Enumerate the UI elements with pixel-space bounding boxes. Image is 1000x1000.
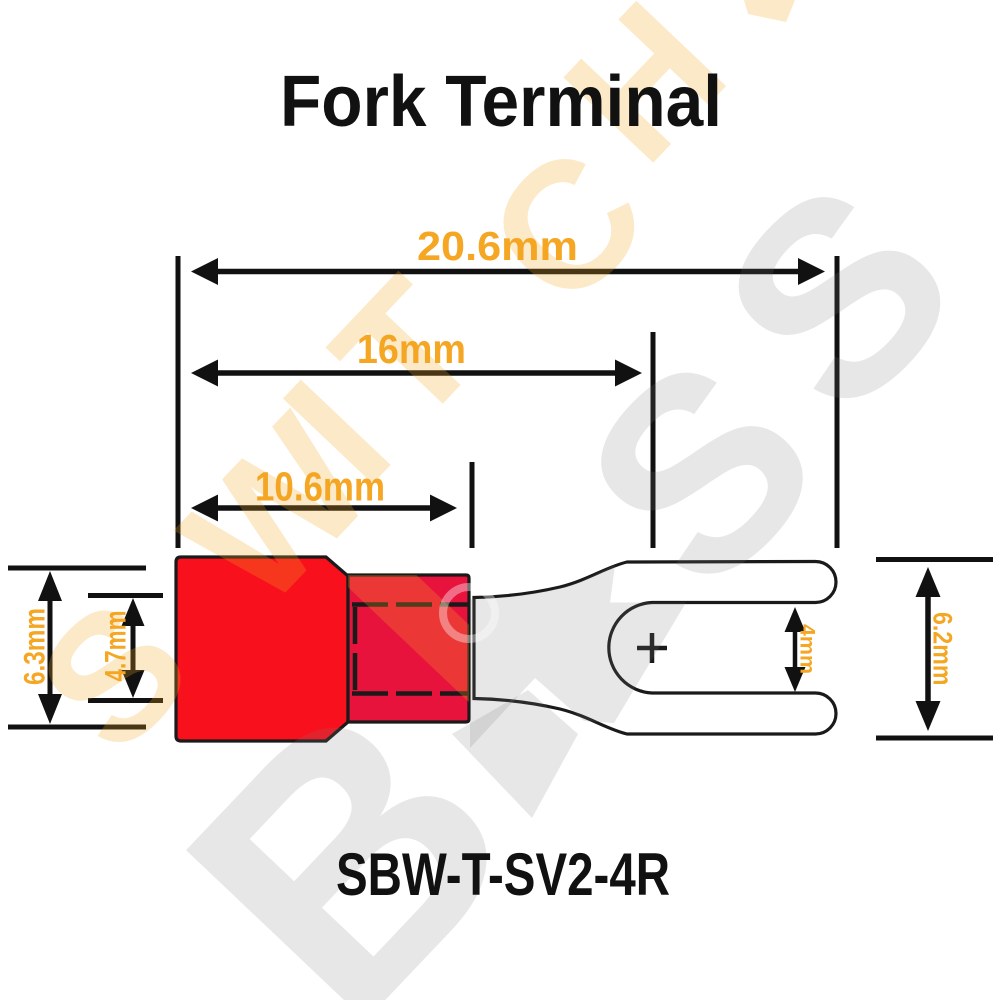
svg-text:Fork Terminal: Fork Terminal	[280, 62, 722, 142]
svg-text:6.2mm: 6.2mm	[928, 612, 958, 686]
svg-text:4mm: 4mm	[796, 624, 820, 674]
svg-text:SBW-T-SV2-4R: SBW-T-SV2-4R	[336, 841, 670, 908]
